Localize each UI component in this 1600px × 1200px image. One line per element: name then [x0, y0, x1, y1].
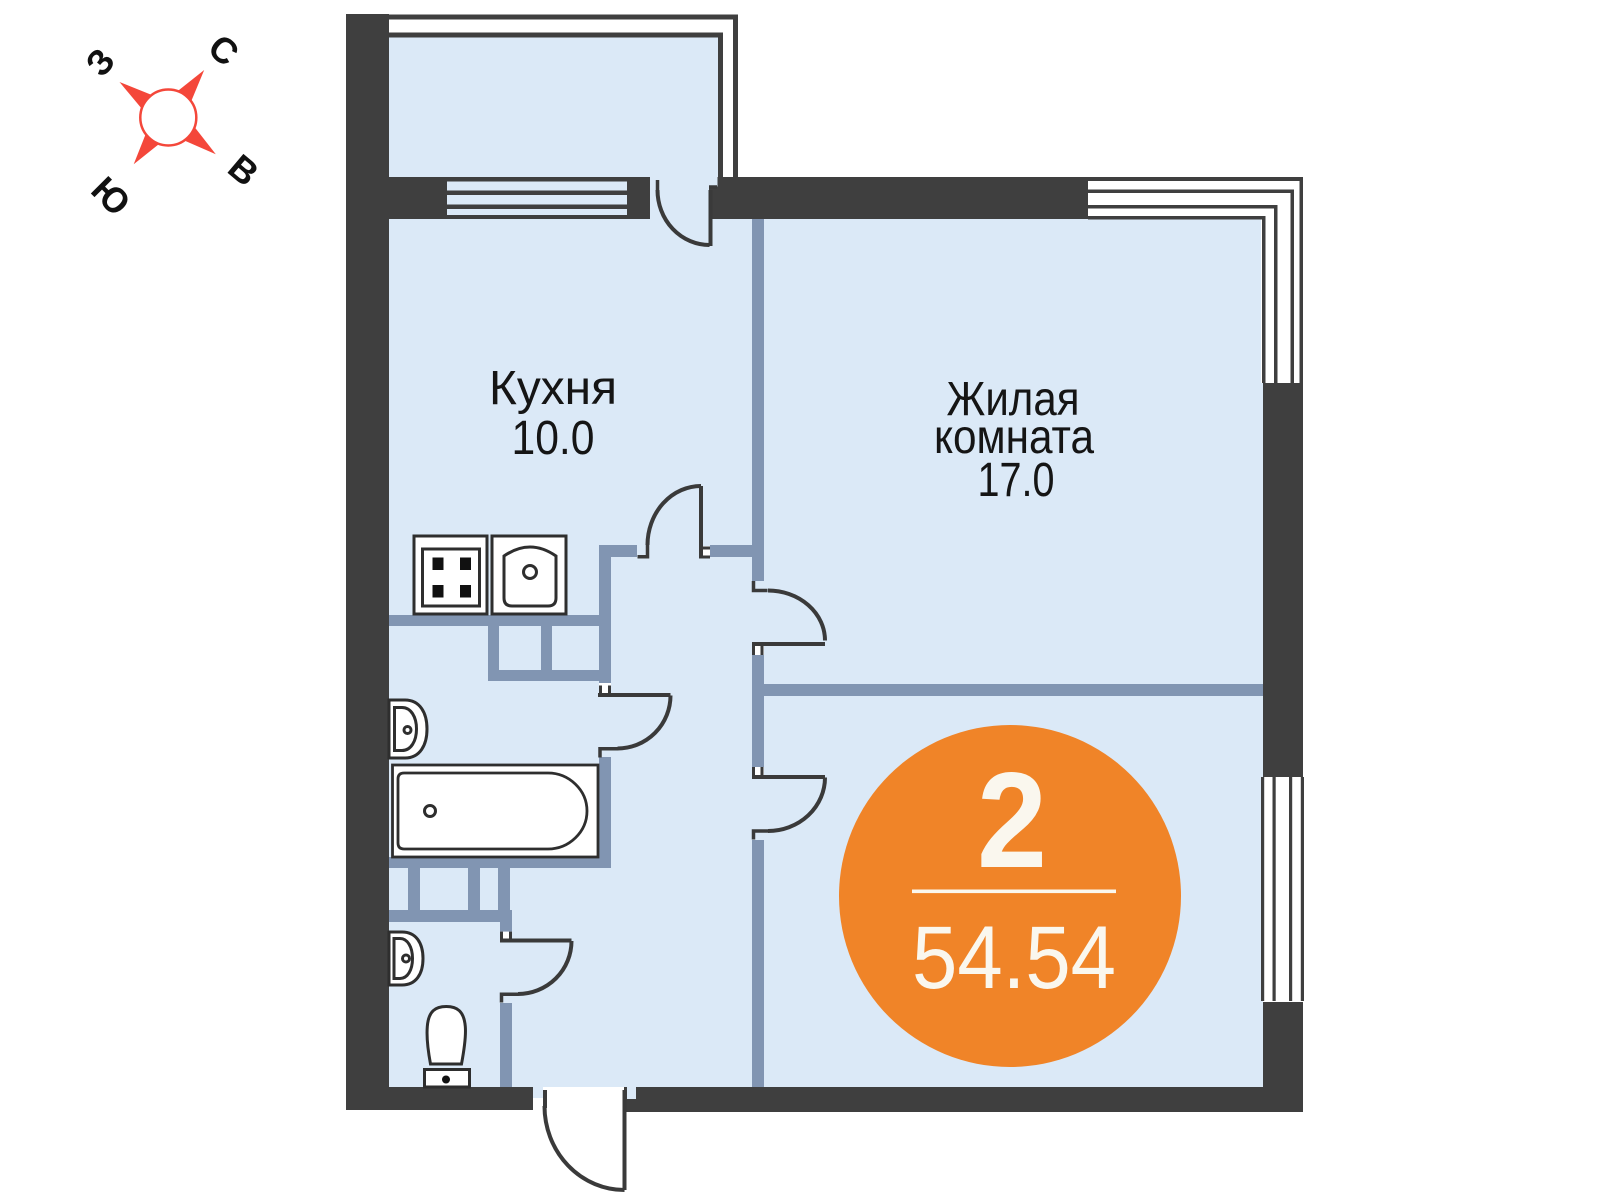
svg-text:54.54: 54.54: [912, 907, 1116, 1007]
svg-text:Кухня: Кухня: [489, 362, 617, 415]
svg-text:10.0: 10.0: [512, 412, 595, 465]
svg-text:2: 2: [977, 744, 1047, 896]
svg-text:17.0: 17.0: [978, 454, 1055, 507]
